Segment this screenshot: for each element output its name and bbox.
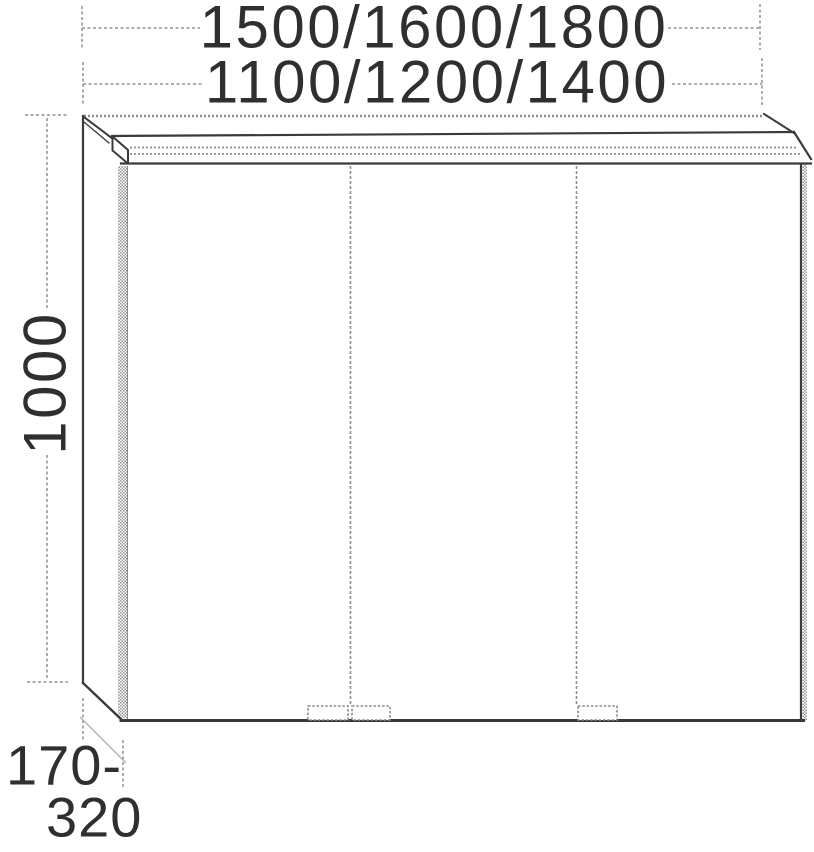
light-panel [112,114,811,164]
light-panel-left-end-cap [113,137,129,164]
light-panel-back-right-connector [764,114,794,133]
side-panel-front-edge-shading [118,166,127,718]
dim-width-bottom: 1100/1200/1400 [83,49,762,116]
door2-grip-rail [352,706,390,720]
door3-grip-rail [578,706,617,720]
side-panel-bottom-edge [83,683,122,720]
light-panel-top-edge [112,132,794,136]
side-panel-top-edge-outer [84,117,113,139]
dim-depth-label-line2: 320 [46,786,142,849]
technical-drawing-page: 1500/1600/1800 1100/1200/1400 1000 170- … [0,0,814,852]
dim-height-label: 1000 [12,311,79,454]
cabinet-body [83,116,807,721]
dim-height: 1000 [12,115,79,682]
light-panel-right-slant-edge [794,132,811,159]
door1-grip-rail [308,706,348,720]
right-edge-shading [803,164,808,721]
dim-width-bottom-label: 1100/1200/1400 [205,49,669,116]
mirror-cabinet-dimension-drawing: 1500/1600/1800 1100/1200/1400 1000 170- … [0,0,814,852]
